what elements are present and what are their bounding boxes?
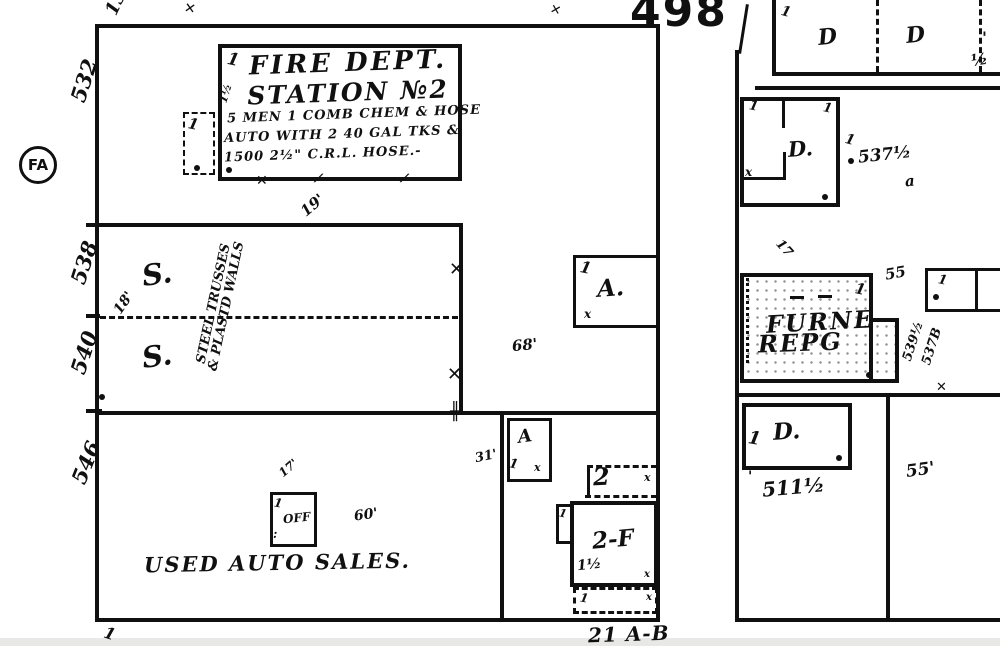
dimension-17: 17 — [773, 237, 795, 259]
right-lot-divider — [886, 393, 890, 622]
dimension-60ft: 60' — [353, 506, 378, 523]
top-building-left-wall — [772, 0, 776, 75]
warehouse-room-label: S. — [140, 340, 174, 373]
top-building-story-count: 1 — [779, 4, 792, 20]
dwelling-d-step-vert — [783, 152, 786, 180]
warehouse-top-wall — [95, 223, 463, 227]
office-dots: : — [273, 528, 277, 540]
fire-alarm-symbol: FA — [19, 146, 57, 184]
building-a-label: A. — [596, 275, 625, 301]
dwelling-d-upper-label: D. — [787, 137, 813, 160]
warehouse-room-label: S. — [140, 258, 174, 291]
building-2f-height: 1½ — [576, 557, 602, 573]
right-block-curve — [738, 4, 749, 54]
office-label: OFF — [282, 511, 311, 526]
address-story-tick: 1 — [843, 132, 856, 148]
right-block-bottom-wall — [737, 618, 1000, 622]
shed-a-label: A — [517, 427, 533, 447]
building-2f-label: 2-F — [591, 526, 635, 553]
dimension-31ft: 31' — [474, 448, 498, 465]
lot-divider-wall — [500, 411, 504, 620]
survey-dot — [226, 167, 232, 173]
window-mark: x — [584, 308, 591, 320]
firewall-mark-icon: ✕ — [183, 1, 197, 17]
right-lot-line-lower — [737, 393, 1000, 397]
right-lot-line-upper — [755, 86, 1000, 90]
tick-mark: ' — [748, 470, 752, 484]
interior-dash — [818, 295, 832, 298]
plate-number: 498 — [630, 0, 728, 34]
firewall-mark-icon: ✕ — [549, 3, 563, 18]
small-outbuilding-outline — [925, 268, 1000, 312]
small-outbuilding-divider — [975, 268, 978, 312]
firewall-mark-icon: ✕ — [447, 366, 462, 384]
survey-dot — [194, 165, 200, 171]
top-building-bottom-wall — [772, 72, 1000, 76]
construction-note: STEEL TRUSSES & PLASTD WALLS — [189, 216, 251, 394]
furniture-repair-label-line2: REPG — [758, 330, 844, 357]
address-letter-a: a — [904, 174, 915, 190]
left-block-bottom-wall — [95, 618, 660, 622]
dimension-55: 55 — [884, 264, 907, 282]
address-511-half: 511½ — [761, 474, 825, 499]
window-mark: x — [646, 593, 652, 603]
wall-tick — [86, 409, 102, 413]
used-auto-sales-label: USED AUTO SALES. — [144, 550, 411, 576]
street-number-13: 13 — [103, 0, 130, 18]
dwelling-d-inner-wall — [782, 99, 785, 128]
right-block-left-wall — [735, 50, 739, 622]
window-mark: x — [644, 472, 651, 483]
block-reference: 21 A-B — [588, 623, 670, 646]
firewall-mark-icon: ✕ — [449, 261, 464, 279]
building-2-story-label: 2 — [592, 465, 610, 490]
survey-dot — [836, 455, 842, 461]
dimension-68ft: 68' — [511, 337, 538, 355]
opening-mark-icon: ╫ — [450, 404, 460, 421]
survey-dot — [99, 394, 105, 400]
survey-dot — [822, 194, 828, 200]
left-block-left-wall — [95, 24, 99, 622]
survey-dot — [933, 294, 939, 300]
interior-dash — [790, 296, 804, 299]
building-2-dashed-bottom — [585, 495, 657, 498]
furniture-repair-extension — [873, 318, 899, 383]
dwelling-label: D — [817, 25, 838, 49]
dimension-18ft: 18' — [111, 289, 136, 317]
firewall-mark-icon: ✕ — [256, 174, 268, 188]
dimension-17ft: 17' — [277, 457, 300, 479]
warehouse-party-line — [100, 316, 458, 319]
window-mark: x — [745, 166, 752, 178]
lot-top-wall — [95, 411, 660, 415]
dimension-55ft: 55' — [905, 460, 936, 481]
window-mark: x — [644, 570, 650, 580]
top-building-party-wall — [876, 0, 879, 72]
building-2-left-jog — [587, 465, 590, 495]
fire-alarm-symbol-label: FA — [28, 158, 48, 173]
dwelling-label: D — [905, 23, 926, 47]
scan-band — [0, 638, 1000, 646]
wall-tick — [86, 223, 102, 227]
dimension-19ft: 19' — [298, 192, 327, 220]
dwelling-d-lower-label: D. — [772, 419, 801, 444]
furniture-repair-dotted-edge — [746, 278, 749, 363]
half-mark: ½ — [970, 51, 989, 69]
warehouse-right-wall — [459, 223, 463, 415]
wall-tick — [86, 314, 100, 318]
survey-dot — [866, 372, 872, 378]
sanborn-map-sheet: 1 1 1½ FIRE DEPT. STATION №2 5 MEN 1 COM… — [0, 0, 1000, 646]
survey-dot — [848, 158, 854, 164]
window-mark: x — [534, 462, 541, 473]
address-537-half: 537½ — [857, 144, 912, 166]
left-block-top-wall — [95, 24, 660, 28]
tick-mark: ' — [982, 30, 987, 46]
firewall-mark-icon: ✕ — [936, 381, 947, 394]
